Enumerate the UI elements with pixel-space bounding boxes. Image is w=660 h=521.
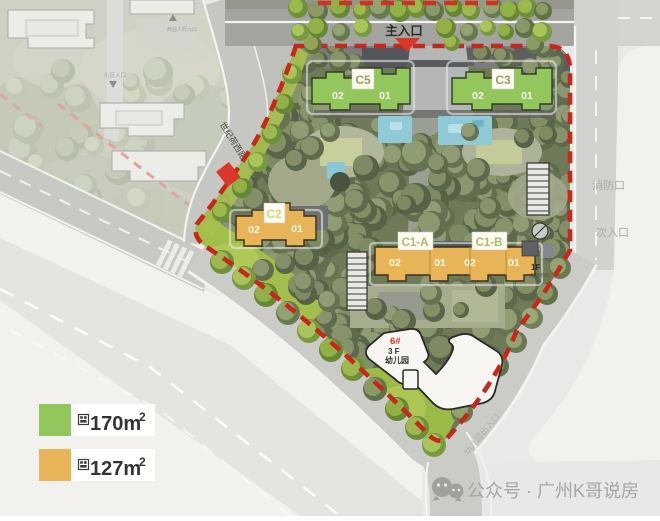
svg-text:C5: C5: [355, 73, 371, 87]
svg-text:3 F: 3 F: [388, 347, 400, 356]
svg-text:幼儿园: 幼儿园: [385, 355, 409, 365]
svg-text:6#: 6#: [390, 336, 401, 347]
svg-text:01: 01: [379, 90, 391, 102]
svg-text:C3: C3: [495, 73, 511, 87]
svg-text:02: 02: [472, 90, 484, 102]
svg-text:2: 2: [139, 410, 146, 424]
svg-text:127m: 127m: [90, 458, 141, 480]
svg-text:01: 01: [434, 257, 446, 269]
svg-text:C1-B: C1-B: [476, 237, 503, 249]
svg-text:1F: 1F: [531, 263, 540, 272]
svg-text:次入口: 次入口: [596, 225, 629, 239]
svg-text:公众号 · 广州K哥说房: 公众号 · 广州K哥说房: [467, 481, 639, 501]
svg-text:C1-A: C1-A: [402, 237, 429, 249]
svg-text:01: 01: [291, 223, 303, 235]
svg-text:01: 01: [508, 257, 520, 269]
svg-text:2: 2: [139, 455, 146, 469]
svg-text:消防口: 消防口: [592, 178, 625, 192]
svg-text:C2: C2: [266, 207, 282, 221]
svg-text:主入口: 主入口: [385, 23, 423, 38]
svg-text:02: 02: [464, 257, 476, 269]
svg-text:02: 02: [248, 224, 260, 236]
svg-text:02: 02: [389, 257, 401, 269]
svg-text:01: 01: [521, 90, 533, 102]
svg-text:02: 02: [332, 90, 344, 102]
svg-text:(配套用房): (配套用房): [529, 272, 550, 279]
svg-text:170m: 170m: [90, 413, 141, 435]
